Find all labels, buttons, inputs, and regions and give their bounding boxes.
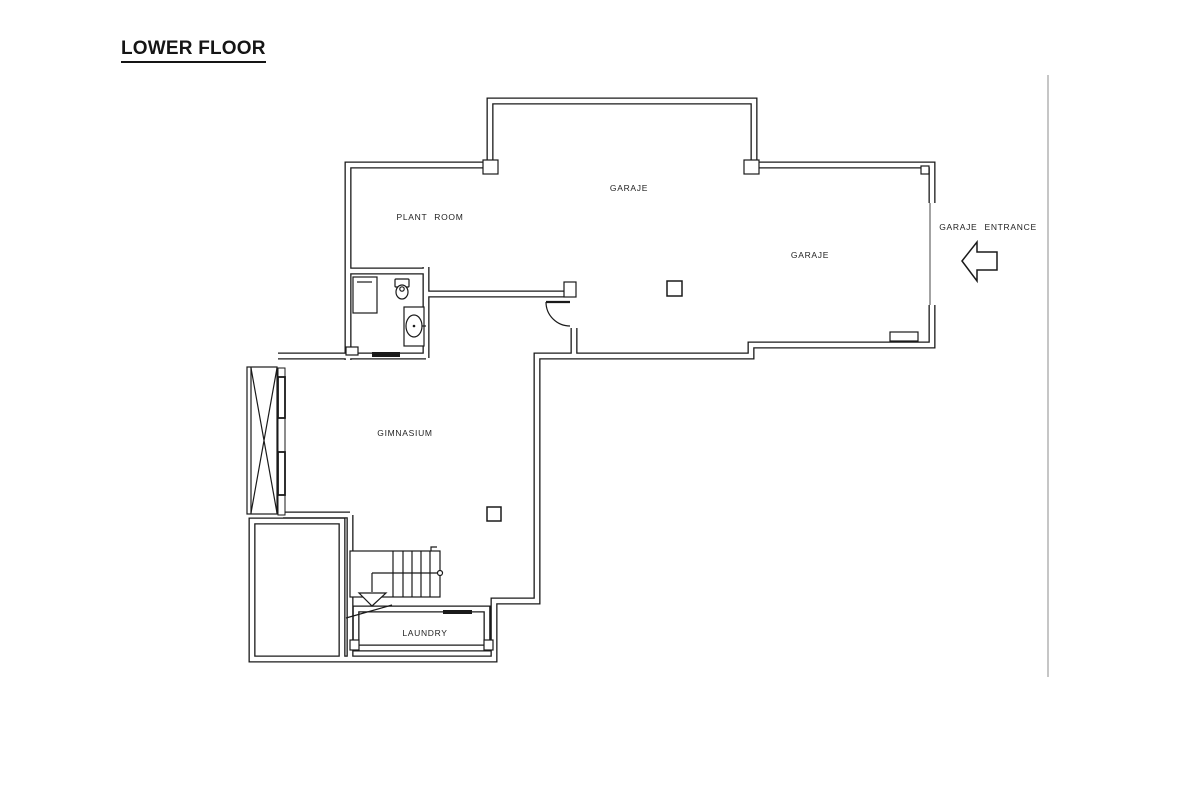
label-garaje-main: GARAJE [791,250,829,260]
label-plant-room: PLANT ROOM [396,212,463,222]
floor-plan-drawing: GARAJE PLANT ROOM GARAJE GARAJE ENTRANCE… [0,0,1200,800]
label-laundry: LAUNDRY [402,628,447,638]
stair-direction-arrow [359,593,386,606]
entrance-arrow-left-icon [962,242,997,281]
toilet [395,279,409,299]
lightwell-x-box [247,367,277,514]
column-garage [667,281,682,296]
sink [404,307,426,346]
column-gymnasium [487,507,501,521]
glazed-wall [278,368,285,515]
interior-door [546,302,570,326]
room-labels: GARAJE PLANT ROOM GARAJE GARAJE ENTRANCE… [377,183,1037,638]
laundry-threshold [443,610,472,614]
bathroom-fixtures [353,277,426,357]
floor-plan-page: LOWER FLOOR [0,0,1200,800]
bathroom-door-threshold [372,352,400,357]
columns [487,281,682,521]
label-garaje-entrance: GARAJE ENTRANCE [939,222,1037,232]
label-garaje-top: GARAJE [610,183,648,193]
label-gimnasium: GIMNASIUM [377,428,432,438]
